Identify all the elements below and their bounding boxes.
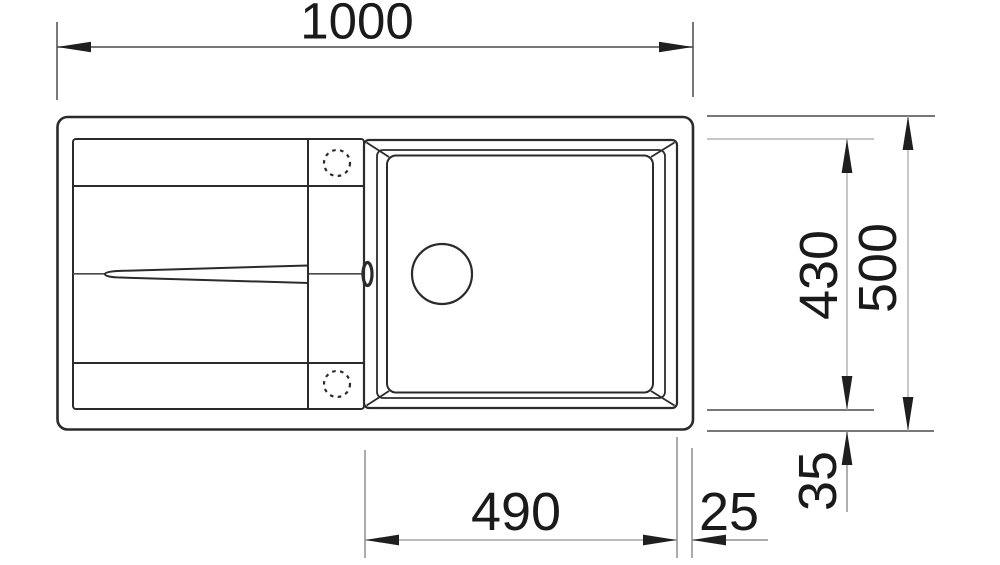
- dim-bowl-width-label: 490: [471, 485, 561, 539]
- drain-hole-circle: [412, 244, 472, 304]
- arrow-490-left: [365, 535, 399, 546]
- arrow-430-bottom: [842, 376, 853, 410]
- drainboard: [73, 139, 372, 409]
- sink-technical-drawing: 1000 430 500 35 490 25: [0, 0, 1000, 565]
- arrow-500-bottom: [903, 397, 914, 431]
- dim-bowl-offset-bottom-label: 35: [791, 451, 845, 511]
- dimension-lines: [57, 47, 908, 540]
- arrow-1000-right: [659, 42, 693, 52]
- arrow-430-top: [842, 139, 853, 173]
- dim-overall-depth-label: 500: [851, 223, 905, 313]
- arrow-1000-left: [57, 42, 91, 52]
- tap-hole-bottom-dashed-circle: [324, 371, 350, 397]
- arrow-500-top: [903, 116, 914, 150]
- tap-hole-top-dashed-circle: [324, 150, 350, 176]
- bowl-rim-middle: [377, 150, 665, 398]
- drainboard-groove: [105, 266, 308, 284]
- dim-bowl-offset-right-label: 25: [699, 485, 759, 539]
- arrow-490-right: [643, 535, 677, 546]
- dim-overall-width-label: 1000: [300, 0, 413, 47]
- bowl-floor: [387, 156, 653, 393]
- bowl: [364, 140, 677, 408]
- dim-bowl-depth-label: 430: [792, 230, 846, 320]
